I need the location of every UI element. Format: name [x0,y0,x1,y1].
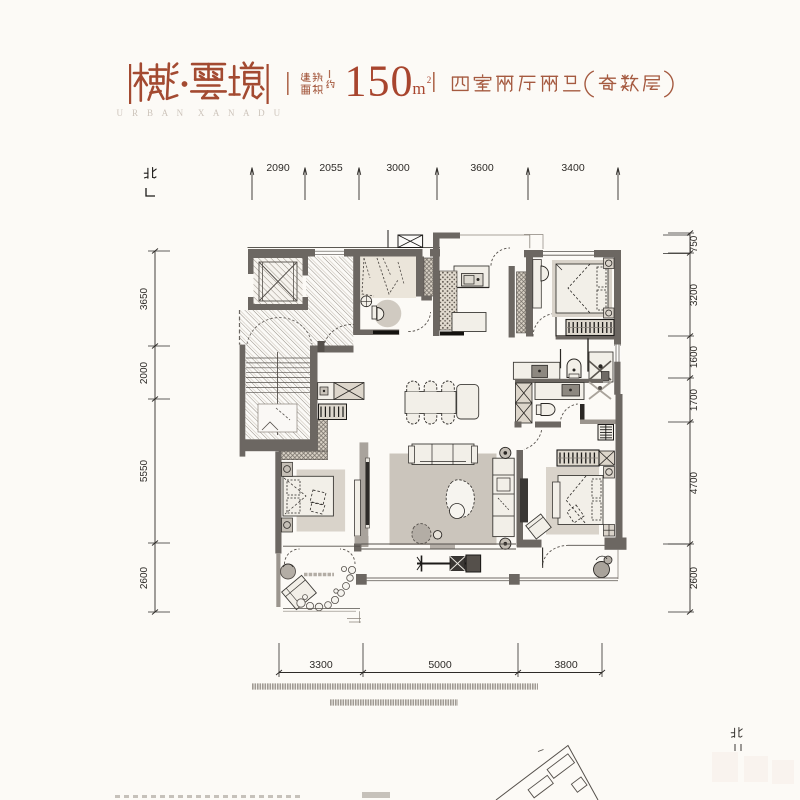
svg-text:1600: 1600 [689,345,700,368]
svg-text:3400: 3400 [561,162,585,174]
svg-text:4700: 4700 [689,471,700,494]
svg-text:m: m [412,79,425,98]
svg-text:U R B A N X A N A D U: U R B A N X A N A D U [116,108,283,118]
svg-text:5000: 5000 [428,659,452,671]
svg-text:3800: 3800 [554,659,578,671]
svg-text:3300: 3300 [309,659,333,671]
svg-text:3200: 3200 [689,283,700,306]
svg-text:2600: 2600 [139,566,150,589]
svg-text:2600: 2600 [689,566,700,589]
svg-text:2: 2 [427,75,432,85]
svg-text:2055: 2055 [319,162,343,174]
svg-text:3000: 3000 [386,162,410,174]
svg-text:2090: 2090 [266,162,290,174]
svg-text:150: 150 [345,57,414,106]
svg-text:750: 750 [689,235,700,252]
svg-text:2000: 2000 [139,361,150,384]
svg-text:1700: 1700 [689,388,700,411]
svg-text:5550: 5550 [139,459,150,482]
svg-text:3650: 3650 [139,287,150,310]
svg-text:3600: 3600 [470,162,494,174]
